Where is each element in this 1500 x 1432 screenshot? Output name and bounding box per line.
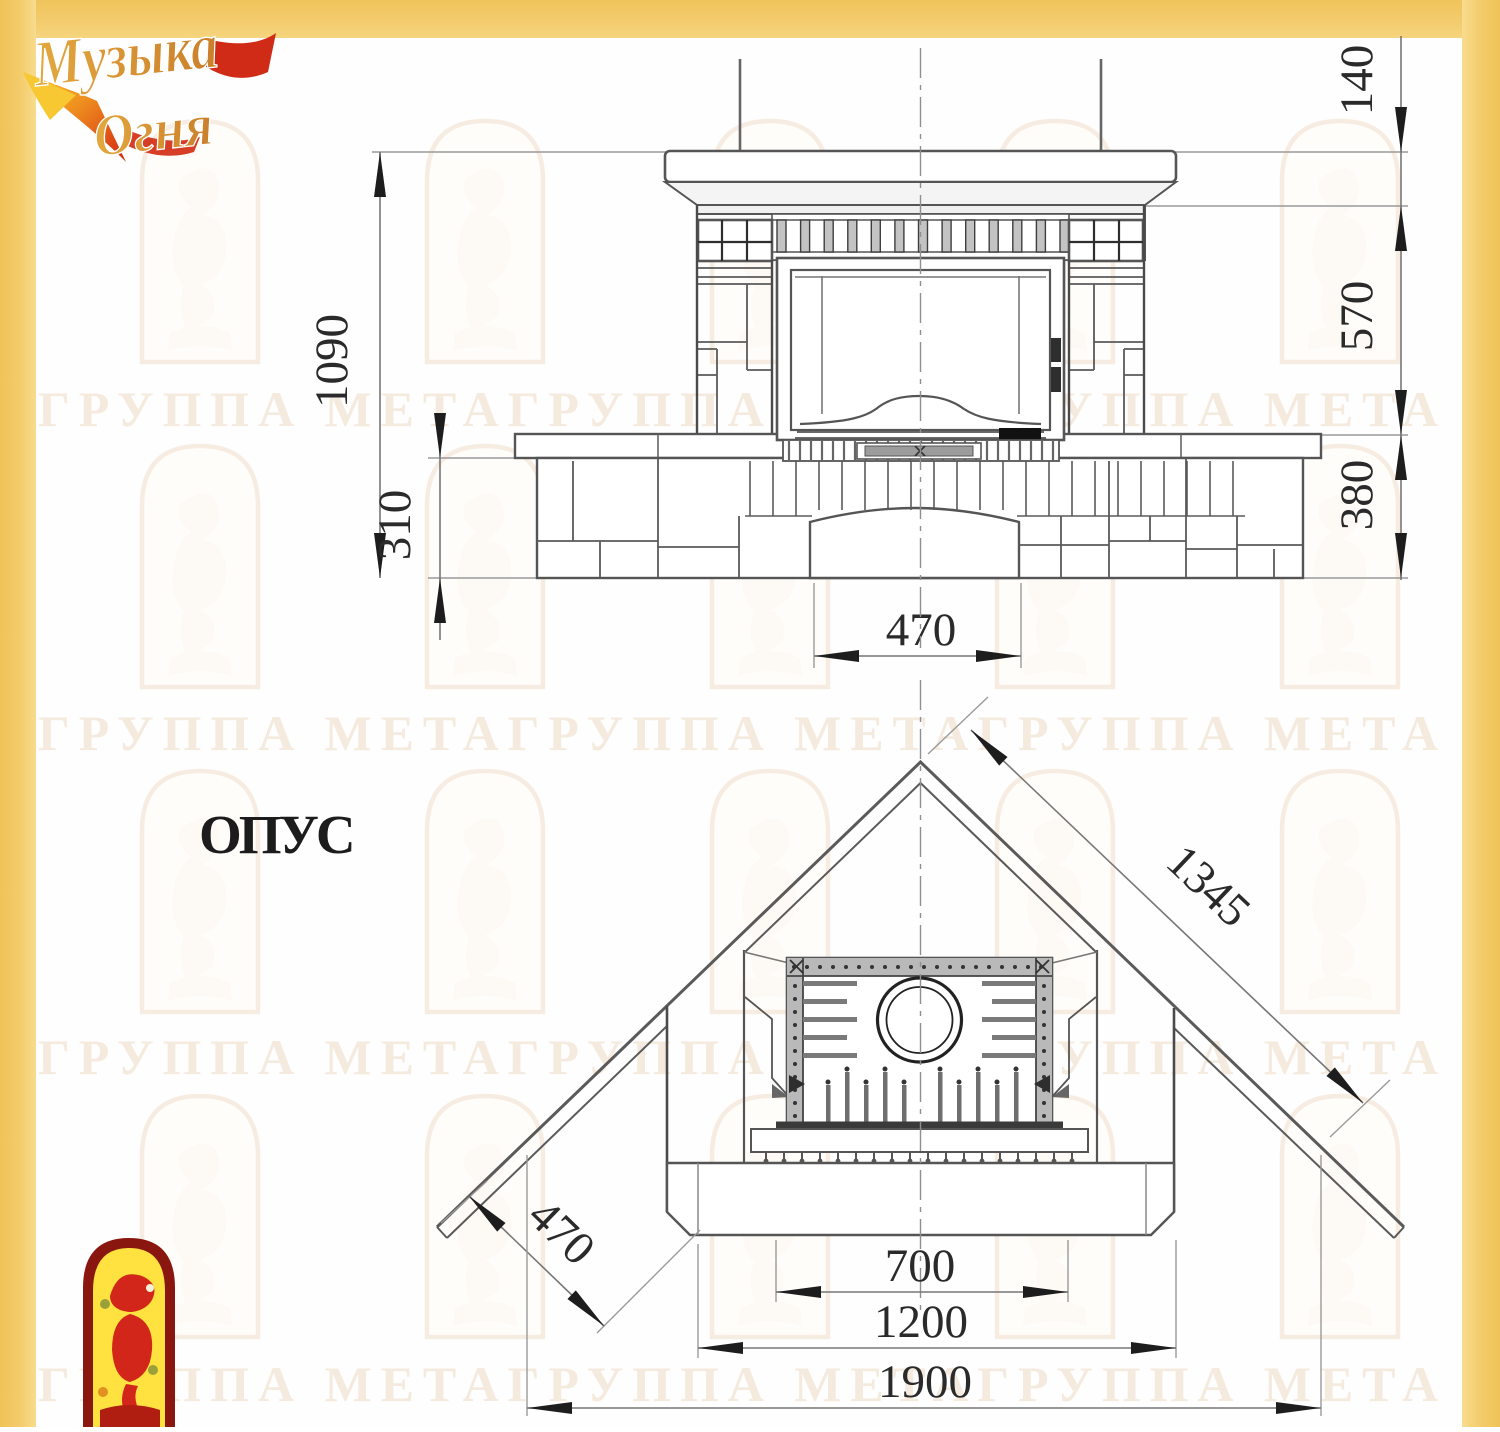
svg-text:380: 380 bbox=[1331, 460, 1383, 531]
svg-text:310: 310 bbox=[369, 490, 421, 561]
svg-text:ОПУС: ОПУС bbox=[199, 804, 353, 865]
svg-text:ГРУППА МЕТАГРУППА МЕТАГРУППА М: ГРУППА МЕТАГРУППА МЕТАГРУППА МЕТА bbox=[38, 381, 1438, 437]
svg-text:570: 570 bbox=[1331, 281, 1383, 352]
svg-text:ГРУППА МЕТАГРУППА МЕТАГРУППА М: ГРУППА МЕТАГРУППА МЕТАГРУППА МЕТА bbox=[38, 1356, 1438, 1412]
svg-text:700: 700 bbox=[885, 1240, 956, 1292]
svg-text:1090: 1090 bbox=[306, 314, 358, 408]
svg-text:Огня: Огня bbox=[91, 92, 216, 169]
svg-text:1200: 1200 bbox=[874, 1296, 968, 1348]
svg-text:140: 140 bbox=[1331, 45, 1383, 116]
svg-text:1900: 1900 bbox=[878, 1356, 972, 1408]
svg-text:ГРУППА МЕТАГРУППА МЕТАГРУППА М: ГРУППА МЕТАГРУППА МЕТАГРУППА МЕТА bbox=[38, 705, 1438, 761]
